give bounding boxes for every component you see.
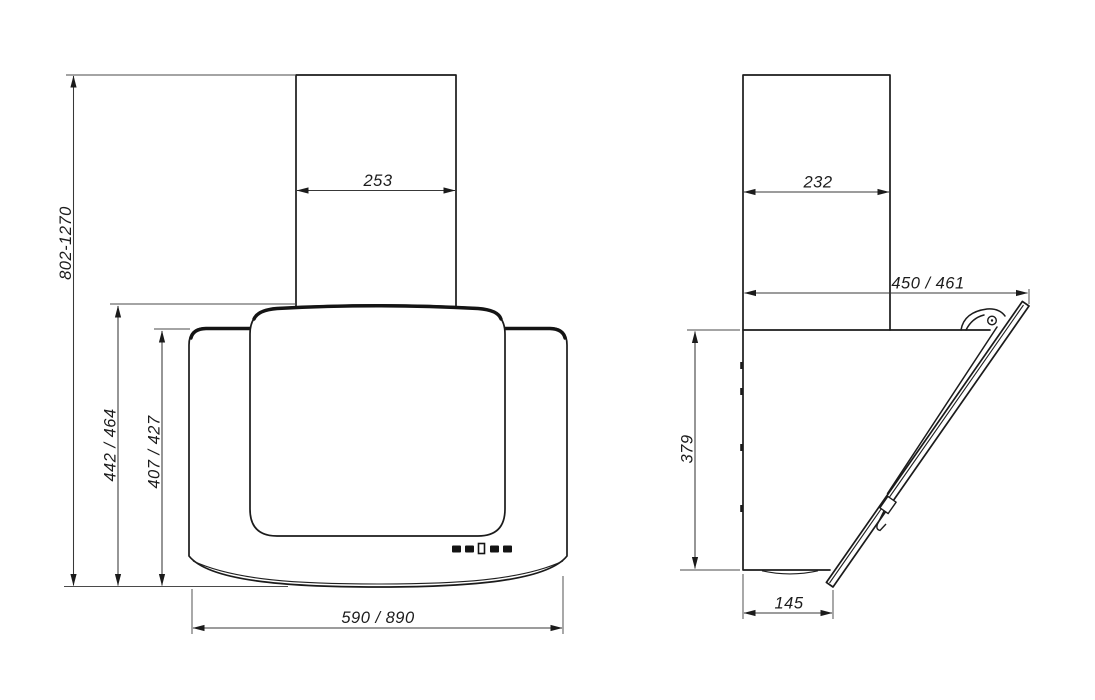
technical-drawing-page: 802-1270 442 / 464 407 / 427 253 590 / 8… bbox=[0, 0, 1095, 700]
dimension-bottom-depth: 145 bbox=[743, 574, 833, 619]
cooker-hood-dimension-drawing: 802-1270 442 / 464 407 / 427 253 590 / 8… bbox=[0, 0, 1095, 700]
hinge-bracket bbox=[961, 309, 1005, 330]
dimension-label-bottom-depth: 145 bbox=[774, 595, 803, 613]
control-button bbox=[465, 546, 474, 553]
control-button-display bbox=[479, 544, 485, 554]
dimension-body-height: 407 / 427 bbox=[146, 329, 191, 586]
control-button bbox=[503, 546, 512, 553]
dimension-label-total-depth: 450 / 461 bbox=[891, 275, 964, 293]
hinge bbox=[961, 309, 1005, 330]
front-view: 802-1270 442 / 464 407 / 427 253 590 / 8… bbox=[57, 75, 567, 634]
control-button bbox=[490, 546, 499, 553]
dimension-label-chimney-width: 253 bbox=[362, 172, 392, 190]
dimension-label-total-height: 802-1270 bbox=[57, 206, 75, 280]
dimension-label-body-width: 590 / 890 bbox=[341, 609, 415, 627]
wall-bracket-nub bbox=[740, 362, 743, 369]
control-button bbox=[452, 546, 461, 553]
wall-bracket-nub bbox=[740, 388, 743, 395]
dimension-total-depth: 450 / 461 bbox=[745, 275, 1030, 305]
side-glass-door-inner-line bbox=[830, 305, 1024, 583]
side-bottom-lip bbox=[762, 571, 818, 574]
dimension-chimney-depth: 232 bbox=[744, 174, 889, 193]
side-glass-pane-line bbox=[888, 327, 998, 494]
hinge-pin-center bbox=[991, 319, 993, 321]
dimension-label-chimney-depth: 232 bbox=[802, 174, 832, 192]
side-view: 232 450 / 461 379 145 bbox=[679, 75, 1030, 619]
dimension-side-body-height: 379 bbox=[679, 330, 741, 570]
dimension-chimney-width: 253 bbox=[297, 172, 455, 191]
dimension-label-side-body-height: 379 bbox=[679, 434, 697, 463]
wall-bracket-nub bbox=[740, 505, 743, 512]
side-chimney-outline bbox=[743, 75, 890, 330]
dimension-label-glass-height: 442 / 464 bbox=[102, 408, 120, 481]
wall-bracket-nub bbox=[740, 444, 743, 451]
front-glass-panel-outline bbox=[250, 305, 505, 536]
dimension-label-body-height: 407 / 427 bbox=[146, 415, 164, 489]
